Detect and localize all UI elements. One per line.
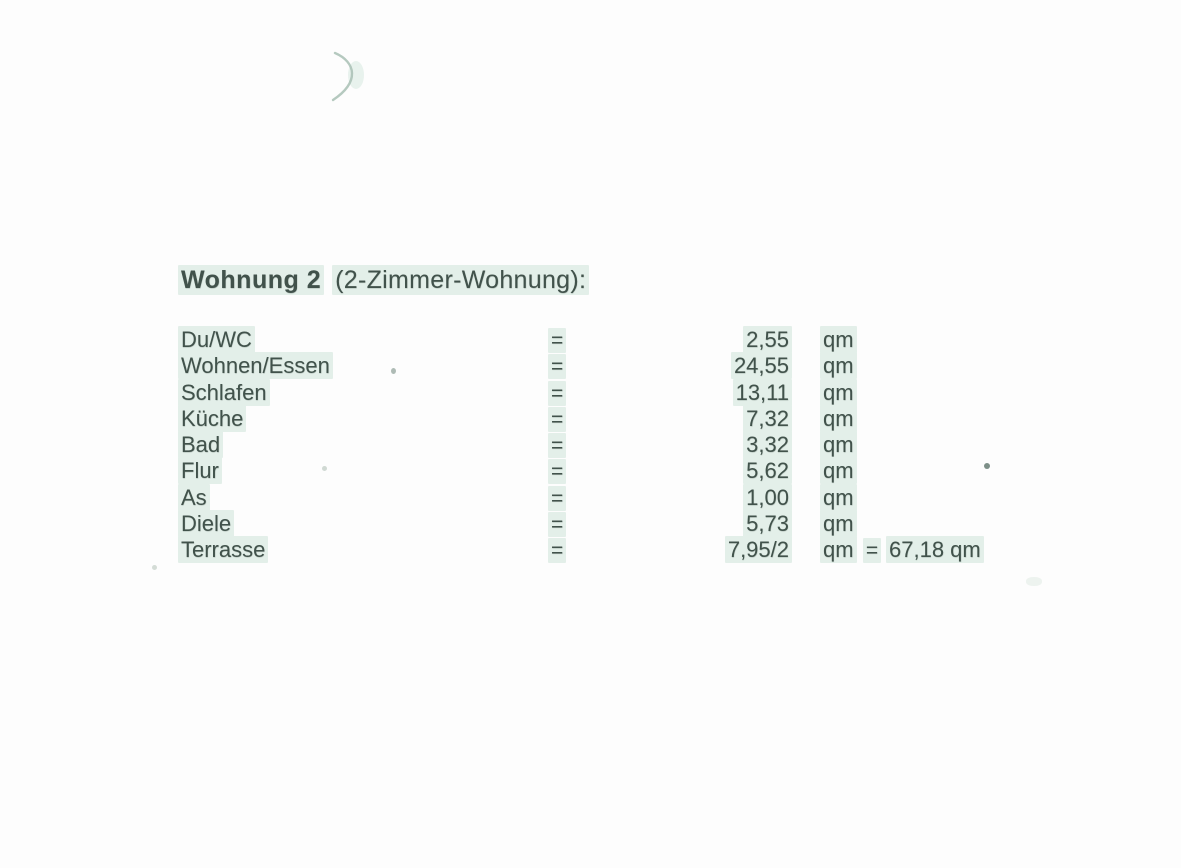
area-table-row: Bad = 3,32 qm (178, 432, 984, 458)
area-table-row: Flur = 5,62 qm (178, 458, 984, 484)
area-value: 24,55 (731, 352, 792, 379)
unit-label: qm (820, 405, 857, 432)
area-table-row: Küche = 7,32 qm (178, 406, 984, 432)
total-equals-sign: = (863, 538, 881, 563)
equals-sign: = (548, 328, 566, 353)
unit-label: qm (820, 352, 857, 379)
unit-label: qm (820, 457, 857, 484)
area-value: 13,11 (733, 379, 792, 406)
unit-label: qm (820, 510, 857, 537)
area-value: 3,32 (743, 431, 792, 458)
area-value: 7,95/2 (725, 536, 792, 563)
unit-label: qm (820, 536, 857, 563)
document-content: Wohnung 2(2-Zimmer-Wohnung): Du/WC = 2,5… (0, 0, 1181, 868)
title-apartment-name: Wohnung 2 (178, 265, 324, 295)
area-value: 1,00 (743, 484, 792, 511)
area-table-row: Du/WC = 2,55 qm (178, 327, 984, 353)
equals-sign: = (548, 433, 566, 458)
area-value: 5,62 (743, 457, 792, 484)
page-title: Wohnung 2(2-Zimmer-Wohnung): (178, 266, 589, 295)
equals-sign: = (548, 486, 566, 511)
total-area-value: 67,18 qm (886, 536, 984, 563)
unit-label: qm (820, 326, 857, 353)
area-table-row: Wohnen/Essen = 24,55 qm (178, 353, 984, 379)
room-label: Du/WC (178, 326, 255, 353)
room-label: As (178, 484, 210, 511)
equals-sign: = (548, 512, 566, 537)
room-label: Terrasse (178, 536, 268, 563)
area-value: 2,55 (743, 326, 792, 353)
room-label: Schlafen (178, 379, 270, 406)
area-table-row: As = 1,00 qm (178, 485, 984, 511)
area-value: 7,32 (743, 405, 792, 432)
room-label: Diele (178, 510, 234, 537)
area-table-row: Schlafen = 13,11 qm (178, 380, 984, 406)
room-label: Flur (178, 457, 222, 484)
scanned-document-page: Wohnung 2(2-Zimmer-Wohnung): Du/WC = 2,5… (0, 0, 1181, 868)
equals-sign: = (548, 381, 566, 406)
area-table-row: Diele = 5,73 qm (178, 511, 984, 537)
title-apartment-type: (2-Zimmer-Wohnung): (332, 265, 589, 295)
unit-label: qm (820, 379, 857, 406)
area-value: 5,73 (743, 510, 792, 537)
equals-sign: = (548, 538, 566, 563)
room-label: Wohnen/Essen (178, 352, 333, 379)
area-table-row: Terrasse = 7,95/2 qm = 67,18 qm (178, 537, 984, 563)
unit-label: qm (820, 484, 857, 511)
unit-label: qm (820, 431, 857, 458)
equals-sign: = (548, 459, 566, 484)
room-label: Bad (178, 431, 223, 458)
room-label: Küche (178, 405, 246, 432)
area-table: Du/WC = 2,55 qm Wohnen/Essen = 24,55 qm … (178, 327, 984, 564)
equals-sign: = (548, 407, 566, 432)
equals-sign: = (548, 354, 566, 379)
